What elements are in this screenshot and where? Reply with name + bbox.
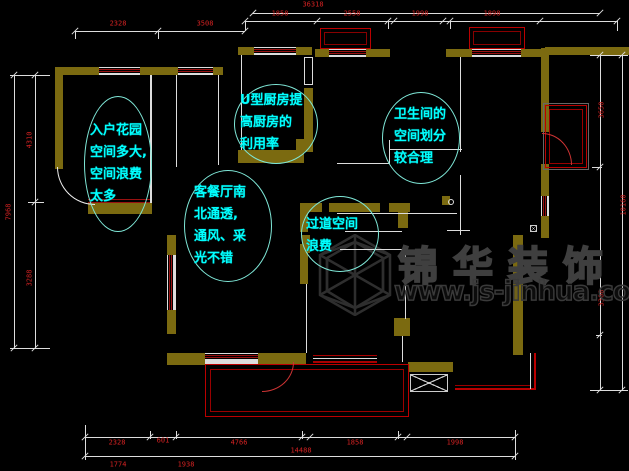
- dimension-line: [14, 75, 15, 348]
- extension-line: [75, 31, 76, 39]
- wall-segment: [398, 212, 408, 228]
- dimension-tick: [596, 9, 603, 16]
- dimension-label: 7968: [6, 204, 13, 221]
- window: [541, 196, 549, 216]
- partition-line: [460, 57, 461, 152]
- annotation-text-foyer: 入户花园 空间多大, 空间浪费 太多: [90, 120, 147, 208]
- bay-window: [324, 32, 367, 45]
- dimension-label: 4310: [27, 132, 34, 149]
- dimension-label: 1774: [110, 462, 127, 469]
- annotation-text-kitchen: U型厨房提 高厨房的 利用率: [240, 90, 303, 156]
- wall-segment: [389, 203, 410, 212]
- window: [167, 255, 176, 310]
- wall-segment: [167, 310, 176, 334]
- annotation-text-corridor: 过道空间 浪费: [306, 214, 358, 258]
- wall-segment: [446, 49, 472, 57]
- door-marker: [530, 225, 537, 232]
- dimension-label: 10160: [621, 194, 628, 215]
- partition-line: [218, 75, 219, 165]
- extension-line: [617, 21, 618, 31]
- dimension-label: 4766: [231, 440, 248, 447]
- wall-segment: [408, 362, 453, 372]
- wall-segment: [394, 318, 410, 336]
- dimension-line: [245, 21, 617, 22]
- partition-line: [402, 336, 403, 362]
- window: [178, 67, 213, 75]
- dimension-label: 3288: [27, 270, 34, 287]
- dimension-line: [75, 31, 245, 32]
- annotation-text-living: 客餐厅南 北通透, 通风、采 光不错: [194, 182, 246, 270]
- wall-segment: [55, 67, 99, 75]
- watermark-url-text: www.js-jinhua.com: [394, 276, 629, 307]
- dimension-tick: [241, 27, 248, 34]
- extension-line: [388, 21, 389, 29]
- dimension-label: 601: [157, 438, 170, 445]
- dimension-label: 14488: [290, 448, 311, 455]
- window: [99, 67, 140, 75]
- wall-segment: [140, 67, 178, 75]
- balcony-outline: [210, 369, 404, 412]
- wall-segment: [213, 67, 223, 75]
- partition-line: [176, 75, 177, 167]
- door-jamb: [304, 57, 313, 85]
- dimension-label: 36318: [302, 2, 323, 9]
- window: [313, 355, 377, 363]
- window: [254, 47, 296, 55]
- dimension-label: 2328: [109, 440, 126, 447]
- partition-line: [530, 353, 531, 389]
- extension-line: [28, 202, 44, 203]
- extension-line: [10, 348, 50, 349]
- extension-line: [158, 31, 159, 39]
- partition-line: [337, 163, 390, 164]
- dimension-label: 3650: [599, 102, 606, 119]
- wall-segment: [296, 47, 312, 55]
- dimension-line: [35, 75, 36, 348]
- dimension-label: 3508: [197, 21, 214, 28]
- window: [329, 49, 366, 57]
- terrace-outline: [455, 353, 531, 386]
- wall-segment: [55, 67, 63, 169]
- wall-segment: [315, 49, 329, 57]
- dimension-label: 2558: [344, 11, 361, 18]
- annotation-text-bathroom: 卫生间的 空间划分 较合理: [394, 104, 446, 170]
- dimension-label: 1938: [178, 462, 195, 469]
- dimension-label: 1898: [484, 11, 501, 18]
- dimension-label: 1858: [272, 11, 289, 18]
- dimension-line: [622, 55, 623, 390]
- dimension-label: 1998: [412, 11, 429, 18]
- partition-line: [447, 230, 470, 231]
- window: [472, 49, 521, 57]
- wall-segment: [238, 47, 254, 55]
- shaft-hatch: [410, 374, 448, 392]
- wall-segment: [167, 353, 205, 365]
- dimension-label: 1998: [447, 440, 464, 447]
- floorplan-canvas: 锦华装饰 www.js-jinhua.com: [0, 0, 629, 471]
- dimension-line: [85, 456, 515, 457]
- partition-line: [306, 284, 307, 353]
- partition-line: [460, 175, 461, 235]
- bay-window: [473, 31, 521, 45]
- dimension-label: 2328: [110, 21, 127, 28]
- extension-line: [10, 75, 50, 76]
- dimension-label: 1858: [347, 440, 364, 447]
- wall-segment: [167, 235, 176, 255]
- wall-segment: [366, 49, 390, 57]
- wall-segment: [545, 47, 629, 55]
- door-marker: [448, 199, 454, 205]
- extension-line: [450, 21, 451, 29]
